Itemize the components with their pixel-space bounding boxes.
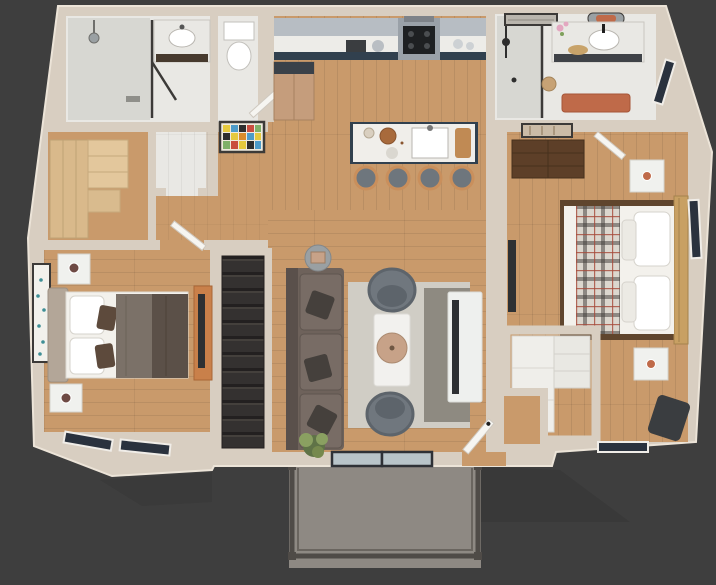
pillow bbox=[622, 282, 636, 322]
canister bbox=[453, 39, 463, 49]
mirror-inset bbox=[311, 252, 325, 263]
plate bbox=[386, 147, 398, 159]
entry-nook-floor bbox=[504, 396, 540, 444]
island-sink bbox=[412, 128, 448, 158]
stair-treads bbox=[222, 256, 264, 448]
shower-handle bbox=[512, 78, 517, 83]
orchid bbox=[564, 22, 569, 27]
bedroom-tv bbox=[508, 240, 516, 312]
plant-pot bbox=[69, 263, 79, 273]
upper-cabinets bbox=[274, 18, 486, 36]
tv bbox=[198, 294, 205, 368]
duvet bbox=[152, 294, 188, 378]
refrigerator-top bbox=[274, 62, 314, 74]
burner bbox=[424, 43, 430, 49]
toilet-bowl bbox=[227, 42, 251, 70]
upholstered-headboard bbox=[48, 288, 68, 382]
basket bbox=[542, 77, 556, 91]
vanity-base bbox=[156, 54, 208, 62]
bar-stool bbox=[419, 167, 441, 189]
bath-rug bbox=[562, 94, 630, 112]
vase bbox=[364, 128, 374, 138]
closet-bench bbox=[88, 190, 120, 212]
sheet-fold bbox=[564, 206, 576, 334]
bar-stool bbox=[355, 167, 377, 189]
tv bbox=[452, 300, 459, 394]
burner bbox=[408, 43, 414, 49]
cooktop bbox=[403, 26, 435, 54]
black-faucet-icon bbox=[602, 24, 605, 33]
accent-chair bbox=[367, 393, 413, 435]
faucet-icon bbox=[180, 25, 185, 30]
teal-wall-art bbox=[33, 264, 50, 362]
canister bbox=[466, 42, 474, 50]
closet-drawers bbox=[554, 336, 590, 388]
vanity-sink bbox=[169, 29, 195, 47]
landscape-art bbox=[505, 14, 557, 25]
ensuite-shower bbox=[497, 16, 542, 118]
floor-plan-canvas bbox=[0, 0, 716, 585]
room-balcony bbox=[288, 458, 482, 568]
wc-partition-wall bbox=[210, 16, 218, 122]
wardrobe bbox=[50, 140, 88, 238]
shower-drain bbox=[126, 96, 140, 102]
tray-knob bbox=[390, 346, 395, 351]
railing-post bbox=[288, 552, 296, 560]
abstract-mosaic-art bbox=[220, 122, 264, 152]
plant-pot bbox=[61, 393, 71, 403]
pillow bbox=[622, 220, 636, 260]
rattan-headboard bbox=[674, 196, 688, 344]
island-faucet-icon bbox=[427, 125, 433, 131]
walk-in-shower bbox=[68, 18, 150, 120]
shower-head-icon bbox=[502, 38, 510, 46]
cup bbox=[643, 172, 652, 181]
toaster bbox=[346, 40, 366, 52]
wood-bowl bbox=[380, 128, 396, 144]
bedroom-right-window bbox=[688, 200, 701, 258]
floor-plan-render bbox=[0, 0, 716, 585]
counter-bowl bbox=[372, 40, 384, 52]
burner bbox=[408, 31, 414, 37]
room-staircase bbox=[214, 248, 272, 452]
orchid bbox=[557, 25, 564, 32]
accent-chair bbox=[369, 269, 415, 311]
sliding-door bbox=[332, 452, 432, 466]
mirror-towel bbox=[596, 15, 616, 22]
cutting-board bbox=[455, 128, 471, 158]
balcony-deck bbox=[289, 458, 481, 568]
duvet bbox=[116, 294, 152, 378]
utensil bbox=[401, 142, 404, 145]
bedroom-right-window bbox=[598, 442, 648, 452]
accent-pillow bbox=[94, 343, 115, 369]
bar-stool bbox=[387, 167, 409, 189]
pillow bbox=[634, 212, 670, 266]
bar-stool bbox=[451, 167, 473, 189]
shower-head-icon bbox=[89, 33, 99, 43]
pillow bbox=[634, 276, 670, 330]
lower-cabinets bbox=[274, 52, 486, 60]
shelving-unit bbox=[88, 140, 128, 188]
railing-post bbox=[474, 552, 482, 560]
cup bbox=[647, 360, 656, 369]
burner bbox=[424, 31, 430, 37]
vanity-base bbox=[554, 54, 642, 62]
microwave-hood bbox=[404, 16, 434, 22]
sofa-back bbox=[286, 268, 298, 450]
vanity-tray bbox=[568, 45, 588, 55]
orchid-leaf bbox=[560, 32, 564, 36]
botanical-art bbox=[522, 124, 572, 137]
toilet-tank bbox=[224, 22, 254, 40]
